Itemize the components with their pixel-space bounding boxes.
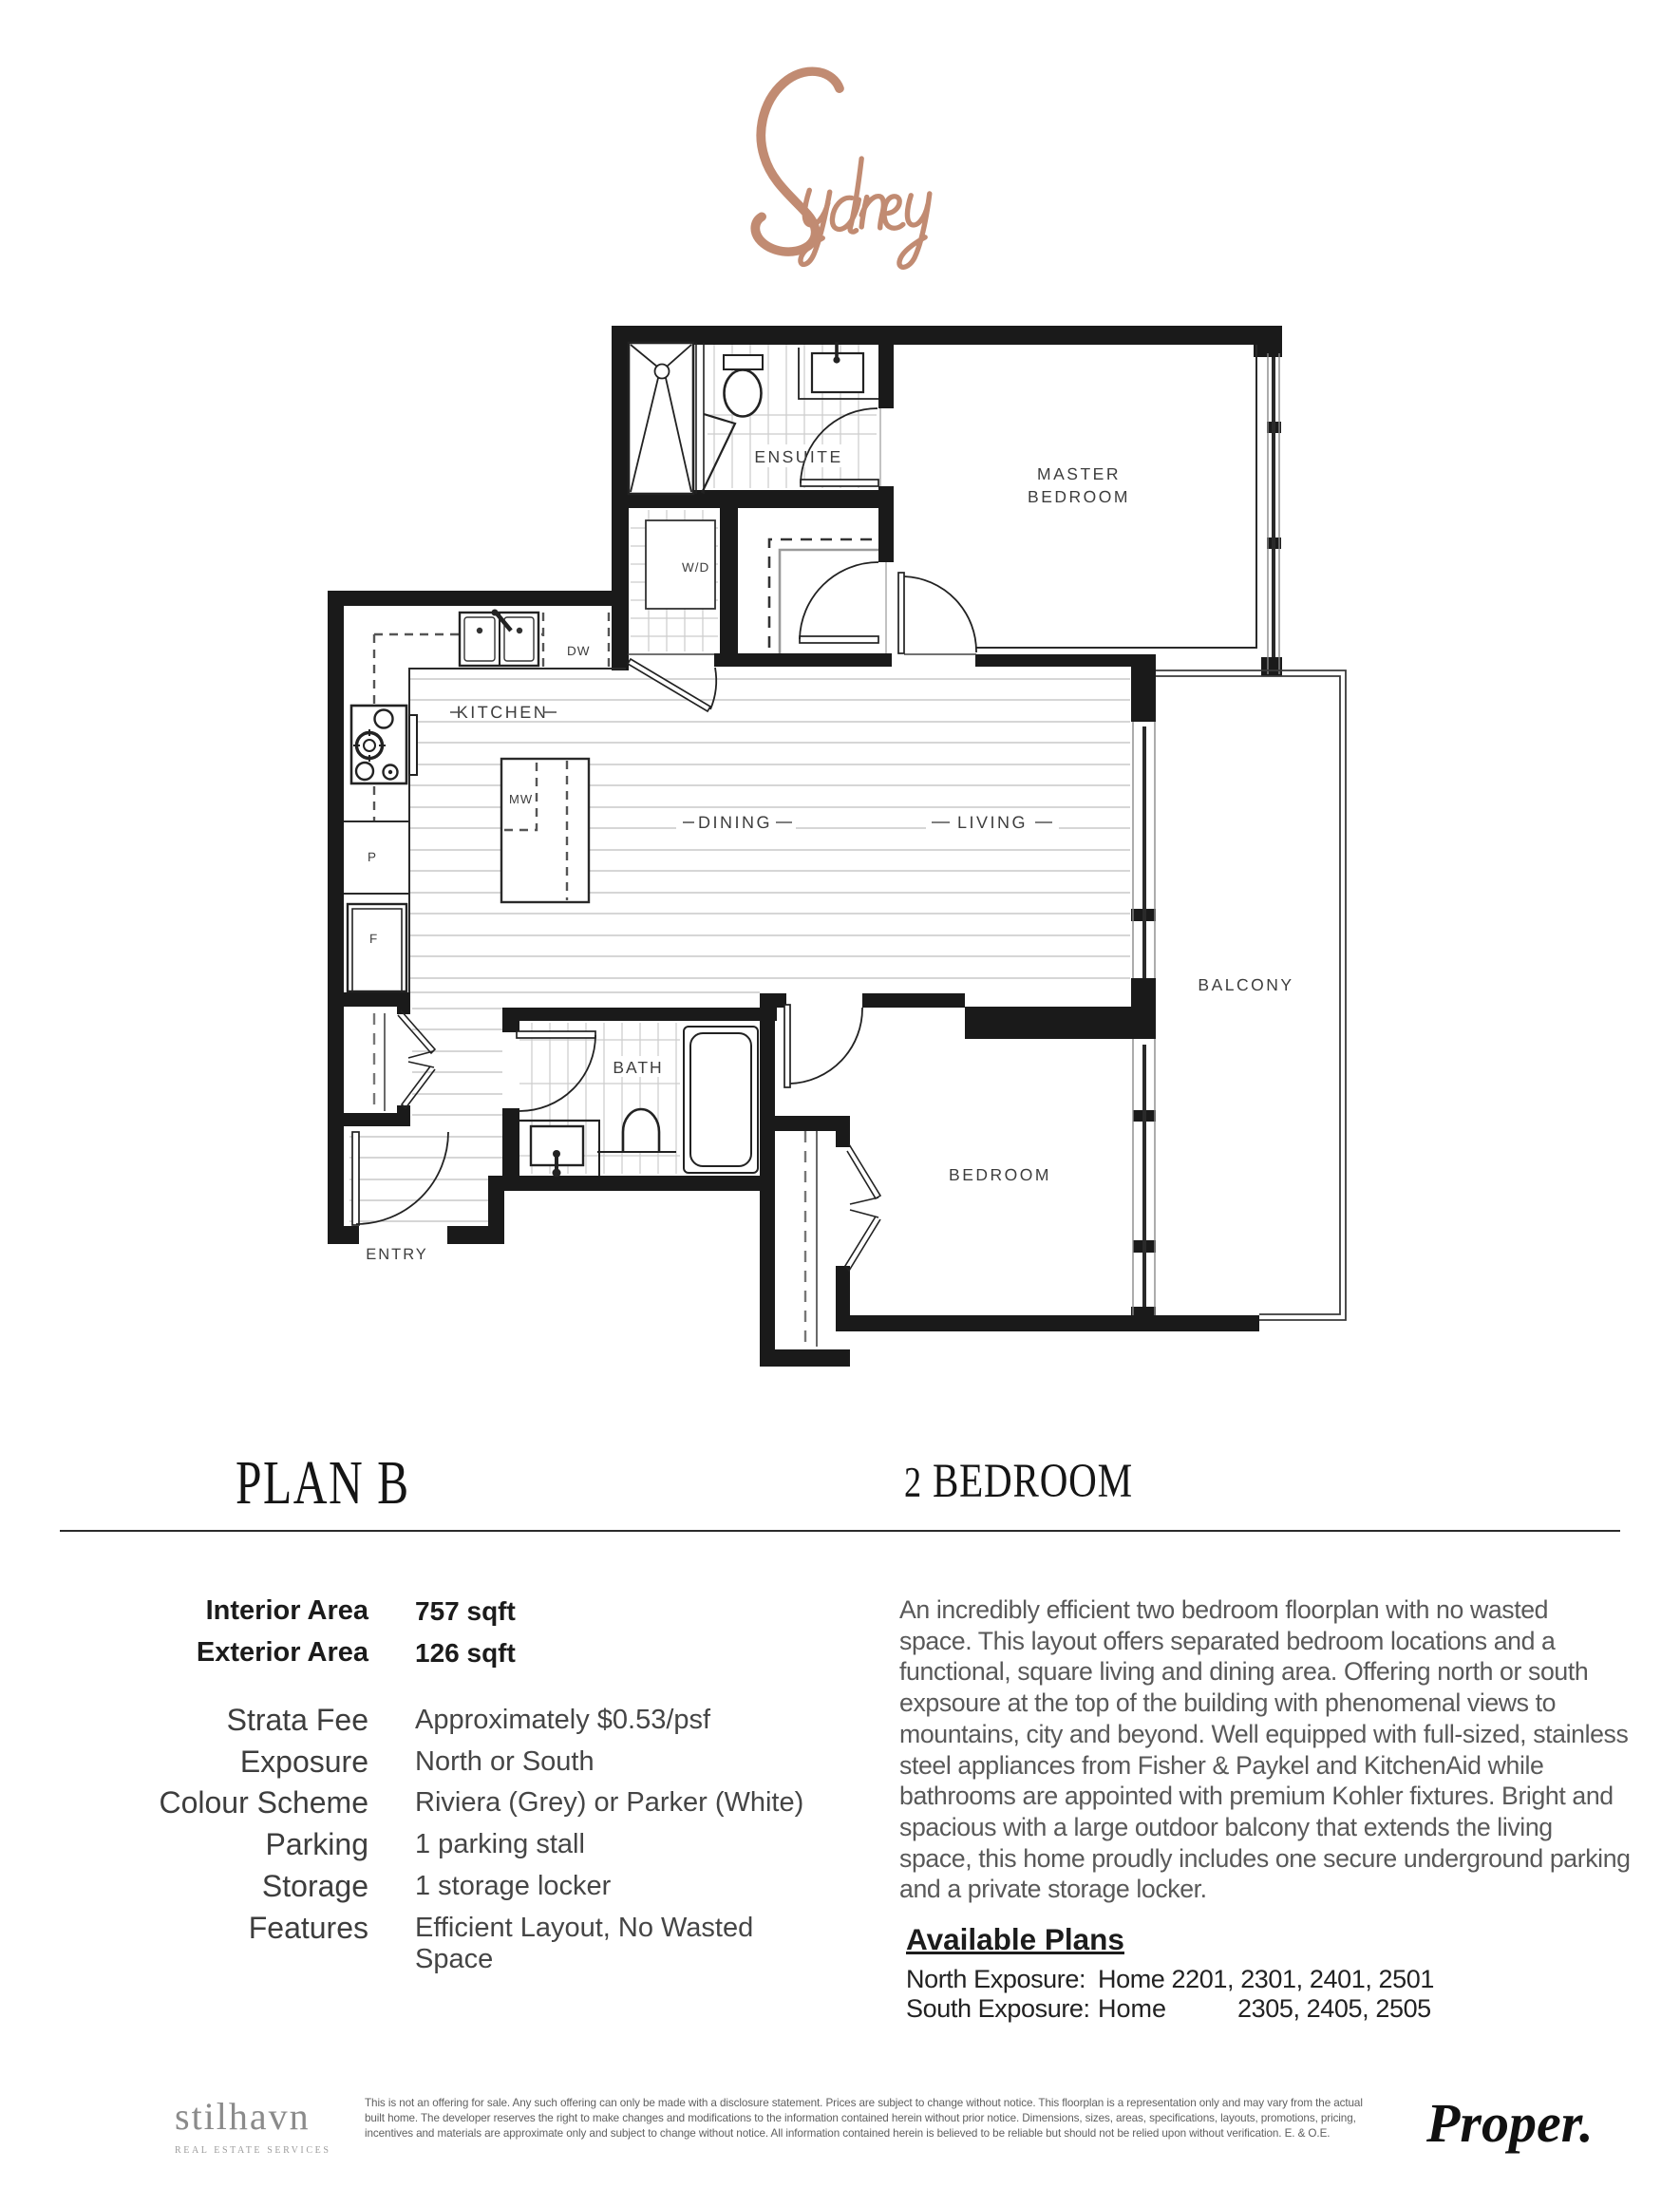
svg-text:LIVING: LIVING [957, 813, 1028, 832]
svg-text:MW: MW [509, 792, 533, 806]
svg-text:MASTER: MASTER [1037, 464, 1121, 483]
svg-text:P: P [368, 850, 376, 864]
svg-text:ENSUITE: ENSUITE [754, 447, 842, 466]
svg-text:F: F [369, 932, 377, 946]
svg-text:KITCHEN: KITCHEN [457, 703, 549, 722]
svg-text:DW: DW [567, 644, 591, 658]
svg-text:BATH: BATH [613, 1058, 663, 1077]
svg-text:DINING: DINING [698, 813, 772, 832]
svg-text:BEDROOM: BEDROOM [949, 1165, 1051, 1184]
svg-text:W/D: W/D [682, 560, 709, 575]
svg-text:BALCONY: BALCONY [1198, 975, 1293, 994]
svg-text:ENTRY: ENTRY [366, 1246, 428, 1263]
svg-text:BEDROOM: BEDROOM [1028, 487, 1130, 506]
